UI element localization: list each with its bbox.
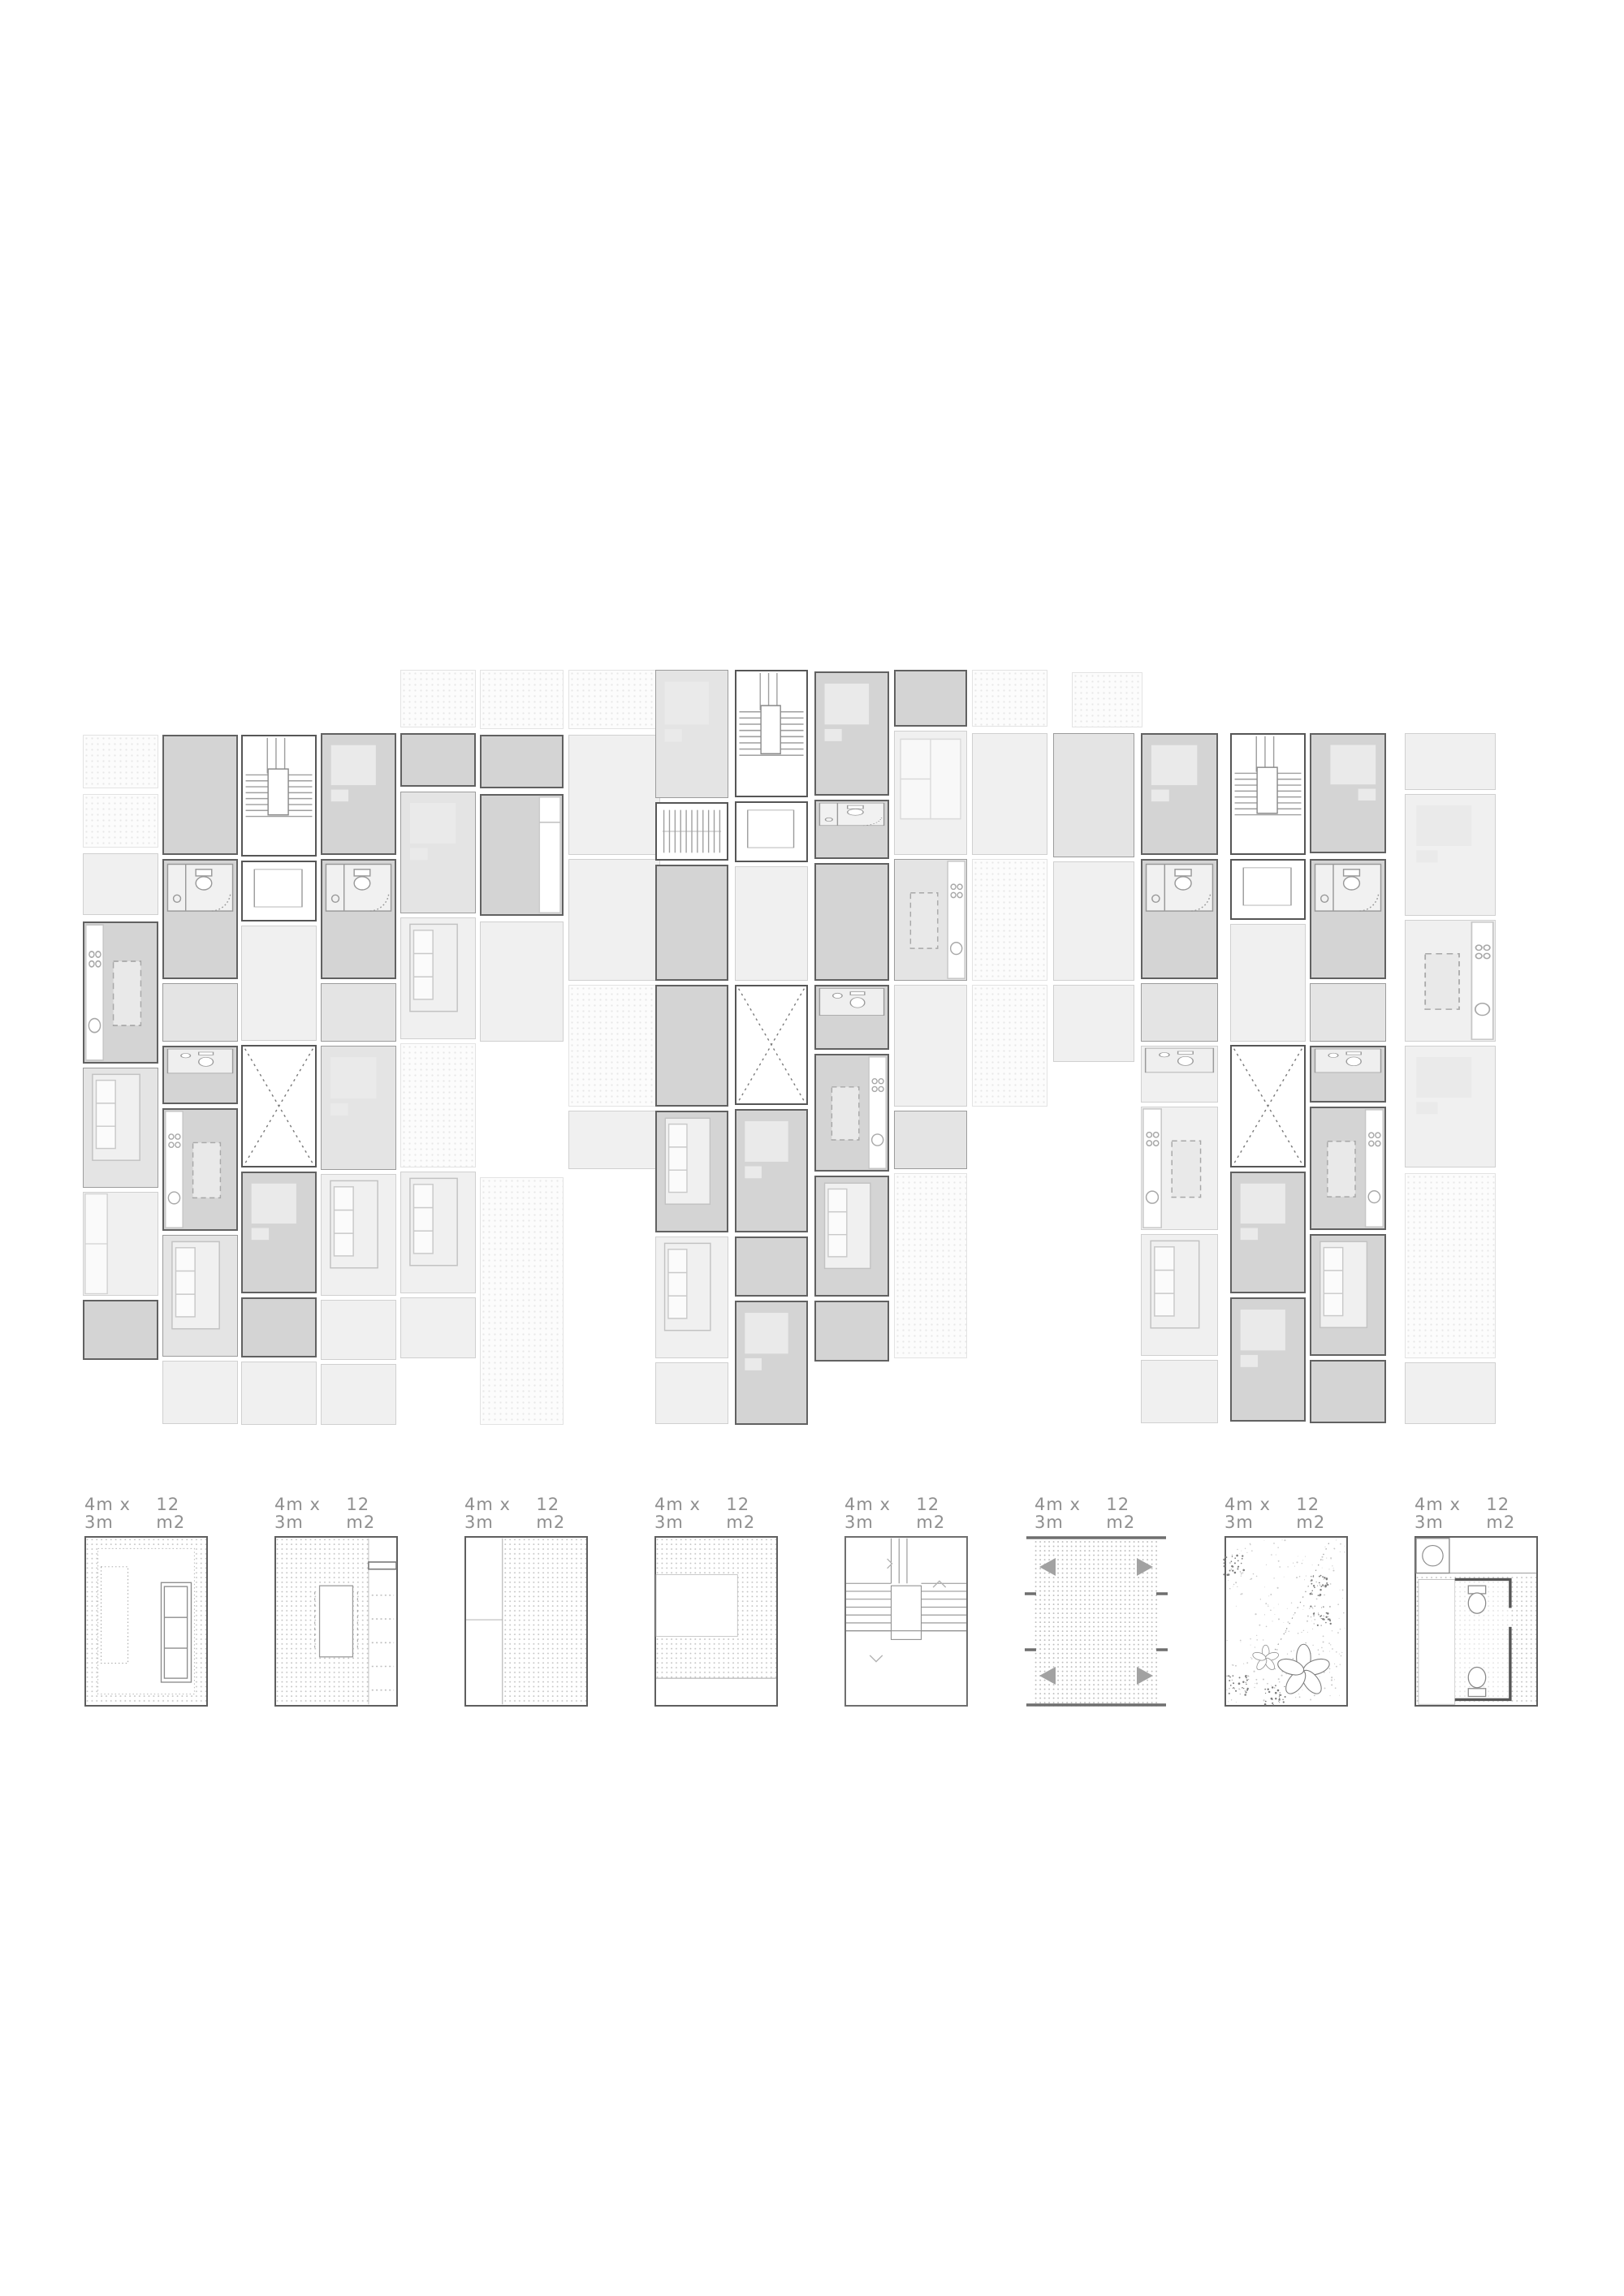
stair-glyph: [243, 736, 315, 855]
plan-module-x: [735, 985, 808, 1105]
bath-glyph: [1142, 861, 1216, 978]
kitL-glyph: [84, 923, 157, 1062]
legend-dims-label: 4m x 3m: [274, 1495, 346, 1531]
sofaV-glyph: [656, 1237, 728, 1357]
legend-drawing-bedroom: [86, 1538, 206, 1705]
plan-module: [400, 670, 476, 727]
plan-module: [480, 735, 564, 788]
plan-module: [894, 670, 967, 727]
plan-module-sq: [1230, 859, 1306, 920]
legend-module-staircase: [844, 1536, 968, 1707]
plan-module-bed: [1405, 1046, 1496, 1167]
legend-module-bathroom: [1415, 1536, 1538, 1707]
plan-module: [1310, 983, 1386, 1042]
legend-label: 4m x 3m12 m2: [274, 1495, 398, 1531]
plan-module-kitL: [1141, 1107, 1218, 1230]
plan-module: [972, 733, 1047, 855]
plan-module-split2: [83, 1192, 158, 1296]
sofaV-glyph: [84, 1068, 158, 1187]
legend-drawing-bathroom: [1416, 1538, 1536, 1705]
plan-module: [83, 853, 158, 915]
sofaV-glyph: [322, 1175, 395, 1295]
legend-label: 4m x 3m12 m2: [464, 1495, 588, 1531]
plan-module: [400, 733, 476, 787]
plan-module: [568, 670, 660, 729]
legend-card-living: 4m x 3m12 m2: [654, 1495, 778, 1707]
stair-glyph: [736, 671, 806, 796]
plan-module-x: [1230, 1045, 1306, 1167]
plan-module-stripR: [480, 794, 564, 916]
plan-module-bathS: [1141, 1046, 1218, 1103]
plan-module-bath: [814, 800, 889, 859]
plan-module: [83, 1300, 158, 1360]
plan-module-x: [241, 1045, 317, 1167]
plan-module: [162, 735, 238, 855]
legend-dims-label: 4m x 3m: [464, 1495, 536, 1531]
plan-module-kitR: [1310, 1107, 1386, 1230]
plan-module-stairS: [655, 802, 728, 861]
legend-label: 4m x 3m12 m2: [1034, 1495, 1158, 1531]
kitR-glyph: [1311, 1108, 1384, 1228]
bed-glyph: [816, 673, 888, 794]
bath-glyph: [816, 801, 888, 857]
plan-module: [894, 1111, 967, 1169]
legend-drawing-staircase: [846, 1538, 966, 1705]
plan-module: [1405, 1362, 1496, 1424]
plan-module: [655, 985, 728, 1107]
legend-dims-label: 4m x 3m: [1415, 1495, 1486, 1531]
legend-area-label: 12 m2: [536, 1495, 588, 1531]
plan-module-sofaV: [655, 1236, 728, 1358]
plan-module: [480, 1177, 564, 1425]
bed-glyph: [322, 1047, 395, 1169]
x-glyph: [243, 1047, 315, 1166]
legend-area-label: 12 m2: [346, 1495, 398, 1531]
bed-glyph: [736, 1111, 806, 1231]
plan-module: [1072, 672, 1142, 727]
plan-module: [655, 865, 728, 981]
legend-area-label: 12 m2: [156, 1495, 208, 1531]
plan-module: [480, 921, 564, 1042]
plan-module-bath: [1310, 859, 1386, 979]
architecture-sheet: 4m x 3m12 m2 4m x 3m12 m2 4m x 3m12 m2 4…: [0, 0, 1624, 2296]
room-glyph: [895, 732, 966, 854]
sofaV-glyph: [401, 1172, 475, 1293]
bathS-glyph: [816, 986, 888, 1048]
plan-module: [321, 983, 396, 1042]
legend-area-label: 12 m2: [1296, 1495, 1348, 1531]
plan-module-stair: [1230, 733, 1306, 855]
plan-module-bathS: [814, 985, 889, 1050]
plan-module: [972, 985, 1047, 1107]
bed-glyph: [1232, 1173, 1304, 1292]
bed-glyph: [401, 792, 475, 913]
plan-module: [972, 670, 1047, 727]
legend-card-flex: 4m x 3m12 m2: [1034, 1495, 1158, 1707]
legend-drawing-garden: [1226, 1538, 1346, 1705]
sofaV-glyph: [1311, 1236, 1384, 1354]
legend-label: 4m x 3m12 m2: [1224, 1495, 1348, 1531]
sq-glyph: [736, 803, 806, 861]
plan-module: [655, 1362, 728, 1424]
legend-dims-label: 4m x 3m: [84, 1495, 156, 1531]
plan-module-bathS: [1310, 1046, 1386, 1103]
plan-module: [1053, 733, 1134, 857]
kitL-glyph: [164, 1110, 236, 1229]
legend-label: 4m x 3m12 m2: [654, 1495, 778, 1531]
plan-module-bed: [1230, 1297, 1306, 1422]
plan-module-sq: [241, 861, 317, 921]
plan-module: [241, 926, 317, 1041]
legend-drawing-flex: [1034, 1536, 1158, 1707]
plan-module-bed: [1230, 1172, 1306, 1293]
bed-glyph: [243, 1173, 315, 1292]
plan-module-sofaV: [1310, 1234, 1386, 1356]
stair-glyph: [1232, 735, 1304, 853]
kitR-glyph: [895, 860, 966, 980]
bath-glyph: [322, 861, 395, 978]
plan-module-sq: [735, 801, 808, 862]
plan-module: [241, 1297, 317, 1357]
plan-module: [321, 1300, 396, 1360]
plan-module-sofaV: [321, 1174, 396, 1296]
bath-glyph: [164, 861, 236, 978]
legend-card-bathroom: 4m x 3m12 m2: [1415, 1495, 1538, 1707]
bathS-glyph: [1311, 1047, 1384, 1101]
plan-module-kitL: [162, 1108, 238, 1231]
plan-module: [568, 735, 660, 855]
legend-card-staircase: 4m x 3m12 m2: [844, 1495, 968, 1707]
plan-module-bedM: [1310, 733, 1386, 853]
plan-module-bed: [400, 792, 476, 913]
legend-card-bedroom: 4m x 3m12 m2: [84, 1495, 208, 1707]
plan-module: [894, 985, 967, 1107]
legend-dims-label: 4m x 3m: [844, 1495, 916, 1531]
legend-label: 4m x 3m12 m2: [844, 1495, 968, 1531]
legend-card-garden: 4m x 3m12 m2: [1224, 1495, 1348, 1707]
plan-module-sofaV: [400, 1172, 476, 1293]
plan-module: [735, 866, 808, 981]
kitL-glyph: [1142, 1107, 1217, 1229]
sofaV-glyph: [657, 1112, 727, 1231]
plan-module-sofaV: [162, 1235, 238, 1357]
bed-glyph: [322, 735, 395, 853]
legend-dims-label: 4m x 3m: [654, 1495, 726, 1531]
legend-dims-label: 4m x 3m: [1034, 1495, 1106, 1531]
sofaV-glyph: [816, 1177, 888, 1295]
plan-module: [1053, 985, 1134, 1062]
plan-module-sofaV: [1141, 1234, 1218, 1356]
plan-module: [400, 1043, 476, 1167]
plan-module: [568, 1111, 660, 1169]
plan-module-stair: [241, 735, 317, 857]
bed-glyph: [1232, 1299, 1304, 1420]
sofaV-glyph: [163, 1236, 237, 1356]
split2-glyph: [84, 1193, 158, 1295]
bed-glyph: [656, 671, 728, 797]
plan-module: [814, 863, 889, 981]
plan-module: [162, 983, 238, 1042]
plan-module: [321, 1364, 396, 1425]
plan-module: [1141, 983, 1218, 1042]
plan-module-kitL: [83, 921, 158, 1064]
plan-module: [735, 1236, 808, 1297]
plan-module-bed: [321, 733, 396, 855]
plan-module-kitR: [814, 1054, 889, 1172]
legend-module-storage: [464, 1536, 588, 1707]
stairS-glyph: [657, 804, 727, 859]
plan-module: [1230, 924, 1306, 1042]
plan-module-kitR: [894, 859, 967, 981]
plan-module: [1310, 1360, 1386, 1423]
plan-module: [1141, 1360, 1218, 1423]
legend-dims-label: 4m x 3m: [1224, 1495, 1296, 1531]
plan-module: [1405, 733, 1496, 790]
plan-module-bed: [321, 1046, 396, 1170]
plan-module-bed: [814, 671, 889, 796]
plan-module: [894, 1173, 967, 1358]
plan-module-room: [894, 731, 967, 855]
x-glyph: [736, 986, 806, 1103]
bathS-glyph: [1142, 1047, 1217, 1102]
legend-module-flex: [1034, 1536, 1158, 1707]
plan-module-bath: [1141, 859, 1218, 979]
legend-area-label: 12 m2: [1106, 1495, 1158, 1531]
plan-module-bed: [1405, 794, 1496, 916]
legend-module-garden: [1224, 1536, 1348, 1707]
plan-module-kitR: [1405, 920, 1496, 1042]
legend-drawing-living: [656, 1538, 776, 1705]
legend-label: 4m x 3m12 m2: [1415, 1495, 1538, 1531]
bed-glyph: [1142, 735, 1216, 853]
plan-module: [83, 794, 158, 848]
floor-plan-collage: [0, 0, 1624, 2296]
plan-module-bathS: [162, 1046, 238, 1104]
plan-module: [480, 670, 564, 729]
plan-module: [400, 1297, 476, 1358]
sq-glyph: [1232, 861, 1304, 918]
plan-module-bed: [735, 1109, 808, 1232]
legend-drawing-dining: [276, 1538, 396, 1705]
sofaV-glyph: [1142, 1235, 1217, 1355]
bath-glyph: [1311, 861, 1384, 978]
plan-module-stair: [735, 670, 808, 797]
bed-glyph: [1406, 1047, 1495, 1167]
plan-module-bed: [655, 670, 728, 798]
bed-glyph: [1406, 795, 1495, 915]
bathS-glyph: [164, 1047, 236, 1103]
legend-module-dining: [274, 1536, 398, 1707]
sq-glyph: [243, 862, 315, 920]
x-glyph: [1232, 1047, 1304, 1166]
plan-module: [972, 859, 1047, 981]
legend-label: 4m x 3m12 m2: [84, 1495, 208, 1531]
legend-area-label: 12 m2: [1486, 1495, 1538, 1531]
stripR-glyph: [482, 796, 562, 914]
legend-drawing-storage: [466, 1538, 586, 1705]
plan-module-sofaV: [83, 1068, 158, 1188]
legend-card-dining: 4m x 3m12 m2: [274, 1495, 398, 1707]
legend-card-storage: 4m x 3m12 m2: [464, 1495, 588, 1707]
plan-module: [568, 859, 660, 981]
plan-module: [162, 1361, 238, 1424]
plan-module-bed: [241, 1172, 317, 1293]
plan-module-sofaV: [400, 917, 476, 1039]
plan-module: [814, 1301, 889, 1362]
plan-module-sofaV: [814, 1176, 889, 1297]
bed-glyph: [736, 1302, 806, 1423]
kitR-glyph: [816, 1055, 888, 1170]
plan-module-sofaV: [655, 1111, 728, 1232]
kitR-glyph: [1406, 921, 1495, 1041]
legend-area-label: 12 m2: [916, 1495, 968, 1531]
bedM-glyph: [1311, 735, 1384, 852]
plan-module-bed: [1141, 733, 1218, 855]
plan-module-bath: [162, 859, 238, 979]
plan-module-bed: [735, 1301, 808, 1425]
plan-module: [83, 735, 158, 788]
plan-module-bath: [321, 859, 396, 979]
plan-module: [1405, 1173, 1496, 1358]
sofaV-glyph: [401, 918, 475, 1038]
plan-module: [1053, 861, 1134, 981]
legend-area-label: 12 m2: [726, 1495, 778, 1531]
plan-module: [568, 985, 660, 1107]
legend-module-bedroom: [84, 1536, 208, 1707]
plan-module: [241, 1362, 317, 1425]
legend-module-living: [654, 1536, 778, 1707]
